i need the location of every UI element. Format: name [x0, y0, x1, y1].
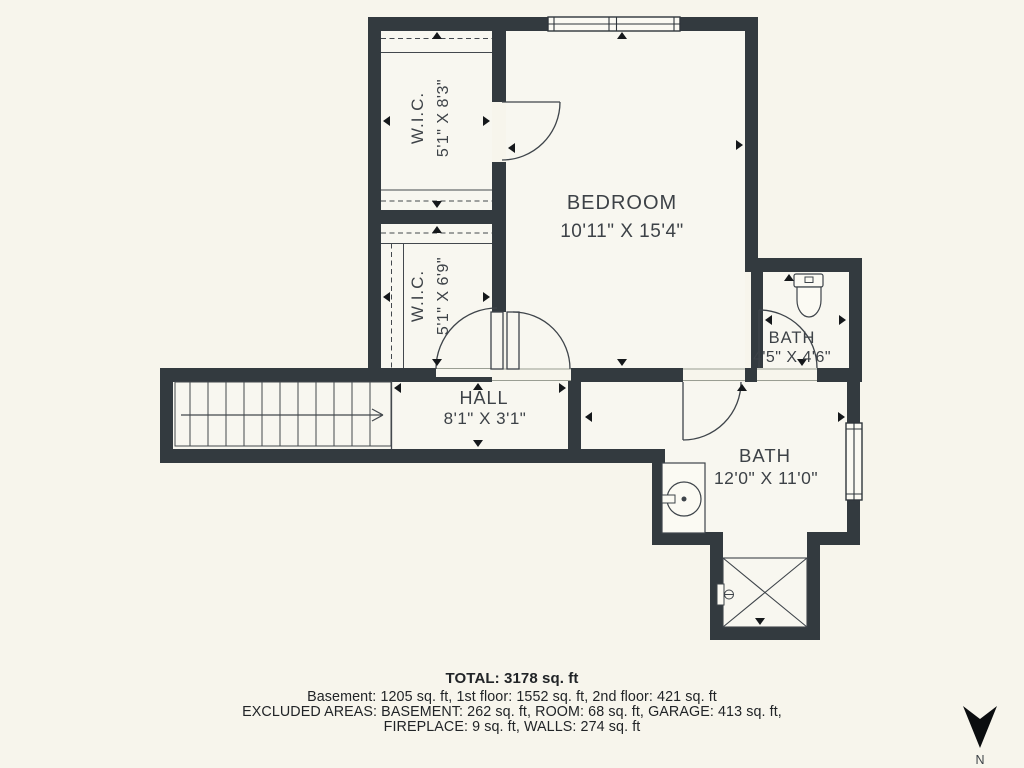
window-bedroom-top [548, 17, 680, 31]
window-bath-right [846, 423, 862, 500]
room-dims-wic-mid: 5'1" X 6'9" [435, 257, 452, 335]
summary-total: TOTAL: 3178 sq. ft [0, 670, 1024, 687]
room-dims-wic-top: 5'1" X 8'3" [435, 79, 452, 157]
room-label-bath-large: BATH [739, 445, 791, 466]
summary-floor-areas: Basement: 1205 sq. ft, 1st floor: 1552 s… [0, 689, 1024, 705]
summary-excluded-line1: EXCLUDED AREAS: BASEMENT: 262 sq. ft, RO… [0, 704, 1024, 720]
room-label-bath-small: BATH [769, 329, 816, 347]
room-dims-bedroom: 10'11" X 15'4" [560, 221, 684, 242]
room-dims-bath-large: 12'0" X 11'0" [714, 468, 818, 488]
room-dims-bath-small: 4'5" X 4'6" [753, 349, 831, 366]
room-label-bedroom: BEDROOM [567, 192, 677, 214]
room-dims-hall: 8'1" X 3'1" [444, 409, 527, 428]
room-label-wic-mid: W.I.C. [408, 270, 427, 322]
room-label-hall: HALL [459, 388, 508, 408]
floor-plan-svg: W.I.C. 5'1" X 8'3" W.I.C. 5'1" X 6'9" BE… [0, 0, 1024, 768]
sink-icon [662, 463, 705, 533]
floor-plan-page: W.I.C. 5'1" X 8'3" W.I.C. 5'1" X 6'9" BE… [0, 0, 1024, 768]
summary-excluded-line2: FIREPLACE: 9 sq. ft, WALLS: 274 sq. ft [0, 719, 1024, 735]
north-arrow-label: N [975, 753, 984, 767]
floor-shower-nook [723, 532, 807, 627]
floor-wic-doorway [436, 368, 492, 377]
room-label-wic-top: W.I.C. [408, 92, 427, 144]
